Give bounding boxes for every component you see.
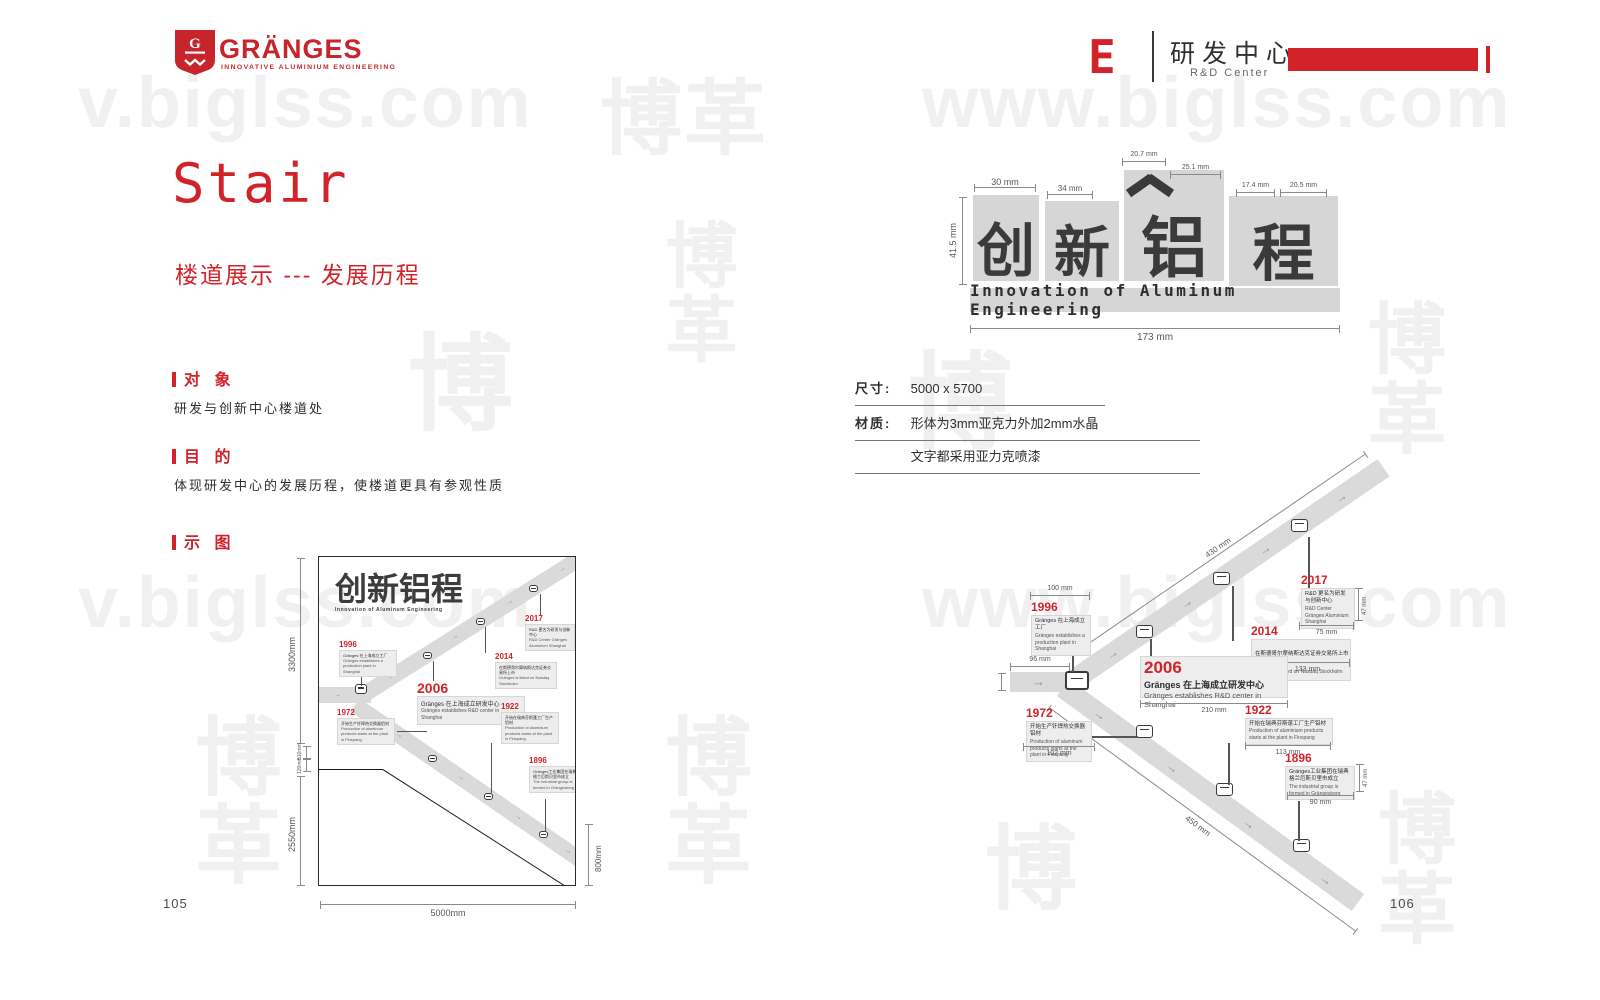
leader-line — [540, 594, 541, 615]
dim-label-100mm: 100 mm — [1047, 585, 1072, 592]
spec-row-material: 材质: 形体为3mm亚克力外加2mm水晶 — [855, 413, 1200, 441]
section-heading: 对 象 — [184, 372, 235, 389]
header-divider — [1152, 31, 1154, 82]
section-heading: 示 图 — [184, 535, 235, 552]
timeline-zh: R&D 更名为研发与创新中心 — [1305, 591, 1351, 606]
dim-label-173mm: 173 mm — [1137, 332, 1173, 343]
page-subtitle: 楼道展示 --- 发展历程 — [175, 256, 421, 290]
timeline-zh: Gränges工业集团在瑞典格兰厄斯贝里市成立 — [1289, 769, 1351, 784]
leader-line — [485, 627, 486, 653]
stair-line-horizontal — [319, 769, 383, 770]
dim-510mm — [306, 746, 307, 759]
sign-char-tile-3: 铝 — [1124, 170, 1224, 281]
dim-30mm: 30 mm — [974, 187, 1036, 188]
dim-label-450mm: 450 mm — [1183, 814, 1212, 838]
timeline-entry-1896: 1896 Gränges工业集团在瑞典格兰厄斯贝里市成立The industri… — [1285, 752, 1355, 800]
sign-char-tile-1: 创 — [973, 195, 1039, 281]
dim-label-17.4mm: 17.4 mm — [1242, 182, 1269, 189]
sign-marker-icon — [1136, 725, 1153, 738]
sign-char: 程 — [1252, 224, 1314, 286]
section-bar — [172, 449, 176, 464]
watermark-text: v.biglss.com — [78, 62, 533, 144]
dim-label-3300mm: 3300mm — [287, 637, 297, 672]
spec-value: 5000 x 5700 — [911, 381, 983, 396]
granges-shield-logo: G — [174, 29, 216, 76]
dim-label-120mm: 120mm — [297, 757, 303, 774]
timeline-year: 1996 — [1031, 601, 1091, 613]
watermark-glyph: 博革 — [600, 52, 768, 171]
dim-label-30mm: 30 mm — [991, 177, 1019, 187]
dim-label-41.5mm: 41.5 mm — [948, 223, 958, 258]
dim-label-47mm-1896: 47 mm — [1363, 769, 1369, 787]
timeline-year: 1896 — [529, 757, 576, 765]
leader-line — [545, 799, 546, 832]
timeline-en: Gränges establishes a production plant i… — [343, 658, 393, 674]
dim-90mm: 90 mm — [1287, 795, 1354, 796]
spec-row-size: 尺寸: 5000 x 5700 — [855, 378, 1105, 406]
section-heading: 目 的 — [184, 449, 235, 466]
sign-logo-small-zh: 创新铝程 — [335, 573, 463, 605]
page-title: Stair — [172, 152, 350, 215]
section-body: 体现研发中心的发展历程，使楼道更具有参观性质 — [174, 475, 504, 494]
spec-label: 材质: — [855, 413, 907, 432]
sign-logo-small-en: Innovation of Aluminum Engineering — [335, 607, 463, 613]
sign-marker-icon — [1216, 783, 1233, 796]
header-red-bar — [1288, 48, 1478, 71]
sign-marker-icon — [423, 652, 432, 659]
dim-34mm: 34 mm — [1047, 194, 1093, 195]
dim-47mm-1896 — [1359, 764, 1360, 792]
page-number-left: 105 — [163, 896, 188, 911]
header-red-dash — [1486, 46, 1490, 73]
sign-marker-icon — [1293, 839, 1310, 852]
dim-25.1mm: 25.1 mm — [1170, 174, 1221, 175]
dim-2550mm — [300, 776, 301, 886]
timeline-en: Production of aluminium products starts … — [505, 725, 555, 741]
dim-label-210mm: 210 mm — [1201, 707, 1226, 714]
sign-marker-icon — [1291, 519, 1308, 532]
sign-marker-icon — [484, 793, 493, 800]
timeline-year: 2006 — [417, 681, 525, 695]
watermark-glyph: 博革 — [1345, 298, 1457, 458]
dim-label-47mm: 47 mm — [1362, 597, 1368, 615]
spec-label: 尺寸: — [855, 378, 907, 397]
dim-20.5mm: 20.5 mm — [1280, 192, 1327, 193]
section-object: 对 象 研发与创新中心楼道处 — [172, 366, 324, 417]
timeline-en: The industrial group is formed in Gränge… — [533, 779, 576, 789]
timeline-entry-1922: 1922 开始在瑞典芬斯蓬工厂生产铝材Production of alumini… — [1245, 704, 1333, 745]
sign-marker-icon — [529, 585, 538, 592]
timeline-en: Production of aluminum products starts a… — [341, 726, 391, 742]
dim-173mm: 173 mm — [970, 328, 1340, 329]
section-illustration: 示 图 — [172, 529, 235, 553]
timeline-entry-1922: 1922 开始在瑞典芬斯蓬工厂生产铝材Production of alumini… — [501, 703, 559, 744]
spec-value: 形体为3mm亚克力外加2mm水晶 — [911, 416, 1099, 431]
timeline-year: 1972 — [1026, 707, 1092, 719]
sign-roof-icon — [1128, 172, 1172, 196]
section-letter: E — [1088, 30, 1116, 84]
dim-label-2550mm: 2550mm — [287, 817, 297, 852]
timeline-entry-1972: 1972 开始生产钎焊热交换器铝材Production of aluminum … — [337, 709, 395, 745]
leader-line — [491, 743, 492, 793]
timeline-year: 1896 — [1285, 752, 1355, 764]
stair-timeline-diagram-large: → →→→→ →→→→ 430 mm 450 mm 96 mm — [985, 455, 1405, 900]
timeline-year: 1922 — [1245, 704, 1333, 716]
timeline-en: Production of aluminium products starts … — [1249, 728, 1329, 742]
dim-entry-height — [1001, 673, 1002, 691]
sign-char: 铝 — [1141, 215, 1207, 281]
sign-logo-small: 创新铝程 Innovation of Aluminum Engineering — [335, 573, 463, 613]
sign-char-tile-4: 程 — [1229, 196, 1338, 286]
svg-text:G: G — [189, 36, 201, 52]
sign-char-tile-2: 新 — [1045, 201, 1119, 281]
timeline-zh: 开始在瑞典芬斯蓬工厂生产铝材 — [1249, 721, 1329, 728]
timeline-entry-2006: 2006 Gränges 在上海成立研发中心 Gränges establish… — [1140, 656, 1288, 698]
dim-label-5000mm: 5000mm — [430, 908, 465, 918]
leader-line — [1090, 736, 1138, 738]
watermark-glyph: 博 — [408, 300, 515, 452]
dim-label-90mm: 90 mm — [1310, 799, 1331, 806]
timeline-en: R&D Center Gränges Aluminium Shanghai — [529, 637, 571, 647]
dim-102mm: 102 mm — [1023, 746, 1095, 747]
timeline-year: 2014 — [495, 653, 557, 661]
dim-113mm: 113 mm — [1245, 745, 1331, 746]
timeline-year: 1972 — [337, 709, 395, 717]
timeline-zh: 开始生产钎焊热交换器铝材 — [1030, 724, 1088, 739]
timeline-year: 1922 — [501, 703, 559, 711]
section-bar — [172, 535, 176, 550]
dim-3300mm — [300, 558, 301, 744]
dim-17.4mm: 17.4 mm — [1236, 192, 1275, 193]
timeline-en: R&D Center Gränges Aluminium Shanghai — [1305, 606, 1351, 626]
timeline-en: Gränges establishes a production plant i… — [1035, 633, 1087, 653]
section-purpose: 目 的 体现研发中心的发展历程，使楼道更具有参观性质 — [172, 443, 504, 494]
timeline-entry-1896: 1896 Gränges工业集团在瑞典格兰厄斯贝里市成立The industri… — [529, 757, 576, 793]
leader-line — [1228, 743, 1230, 785]
timeline-year: 2006 — [1144, 659, 1284, 676]
sign-english-text: Innovation of Aluminum Engineering — [970, 281, 1340, 319]
timeline-zh: Gränges 在上海成立工厂 — [1035, 618, 1087, 633]
dim-label-34mm: 34 mm — [1058, 184, 1082, 193]
stair-elevation-diagram: 创新铝程 Innovation of Aluminum Engineering … — [318, 556, 576, 886]
dim-96mm: 96 mm — [1010, 666, 1070, 667]
timeline-year: 1996 — [339, 641, 397, 649]
leader-line — [1150, 639, 1152, 657]
section-bar — [172, 372, 176, 387]
brand-tagline: INNOVATIVE ALUMINIUM ENGINEERING — [221, 64, 396, 71]
leader-line — [1298, 801, 1300, 841]
timeline-entry-1996: 1996 Gränges 在上海成立工厂Gränges establishes … — [1031, 601, 1091, 656]
dim-20.7mm: 20.7 mm — [1122, 161, 1166, 162]
sign-char: 创 — [977, 223, 1035, 281]
dim-800mm — [588, 824, 589, 886]
dim-120mm — [306, 759, 307, 772]
leader-line — [433, 661, 434, 681]
sign-marker-icon — [1136, 625, 1153, 638]
timeline-zh: Gränges 在上海成立研发中心 — [1144, 678, 1284, 691]
dim-label-20.7mm: 20.7 mm — [1130, 151, 1157, 158]
section-body: 研发与创新中心楼道处 — [174, 398, 324, 417]
sign-char: 新 — [1054, 225, 1110, 281]
timeline-zh: 在斯德哥尔摩纳斯达克证券交易所上市 — [499, 665, 553, 675]
leader-line — [397, 731, 427, 732]
dim-label-96mm: 96 mm — [1029, 656, 1050, 663]
timeline-year: 2014 — [1251, 625, 1351, 637]
timeline-zh: Gränges工业集团在瑞典格兰厄斯贝里市成立 — [533, 769, 576, 779]
leader-line — [1232, 586, 1234, 641]
timeline-zh: R&D 更名为研发与创新中心 — [529, 627, 571, 637]
dim-label-133mm: 133 mm — [1295, 666, 1320, 673]
sign-marker-icon — [428, 755, 437, 762]
watermark-glyph: 博革 — [168, 712, 293, 888]
timeline-year: 2017 — [525, 615, 575, 623]
dim-5000mm: 5000mm — [320, 904, 576, 905]
dim-label-430mm: 430 mm — [1204, 536, 1233, 560]
dim-100mm: 100 mm — [1030, 595, 1090, 596]
timeline-entry-2017: 2017 R&D 更名为研发与创新中心R&D Center Gränges Al… — [525, 615, 575, 651]
dim-47mm — [1358, 588, 1359, 621]
timeline-entry-1996: 1996 Gränges 在上海成立工厂Gränges establishes … — [339, 641, 397, 677]
dim-label-102mm: 102 mm — [1046, 750, 1071, 757]
sign-marker-icon — [476, 618, 485, 625]
sign-marker-icon — [1213, 572, 1230, 585]
brand-wordmark: GRÄNGES — [219, 34, 363, 65]
watermark-glyph: 博革 — [642, 218, 747, 366]
sign-english-strip: Innovation of Aluminum Engineering — [970, 288, 1340, 312]
dim-label-20.5mm: 20.5 mm — [1290, 182, 1317, 189]
document-page: v.biglss.com www.biglss.com v.biglss.com… — [0, 0, 1600, 1000]
dim-label-25.1mm: 25.1 mm — [1182, 164, 1209, 171]
timeline-zh: 开始在瑞典芬斯蓬工厂生产铝材 — [505, 715, 555, 725]
dim-label-800mm: 800mm — [594, 845, 603, 872]
dim-41.5mm — [962, 197, 963, 285]
section-title-zh: 研发中心 — [1170, 34, 1298, 70]
timeline-year: 2017 — [1301, 574, 1355, 586]
timeline-entry-2017: 2017 R&D 更名为研发与创新中心R&D Center Gränges Al… — [1301, 574, 1355, 629]
sign-marker-icon — [1065, 671, 1089, 690]
watermark-glyph: 博革 — [638, 712, 763, 888]
sign-marker-icon — [539, 831, 548, 838]
section-title-en: R&D Center — [1190, 67, 1269, 79]
